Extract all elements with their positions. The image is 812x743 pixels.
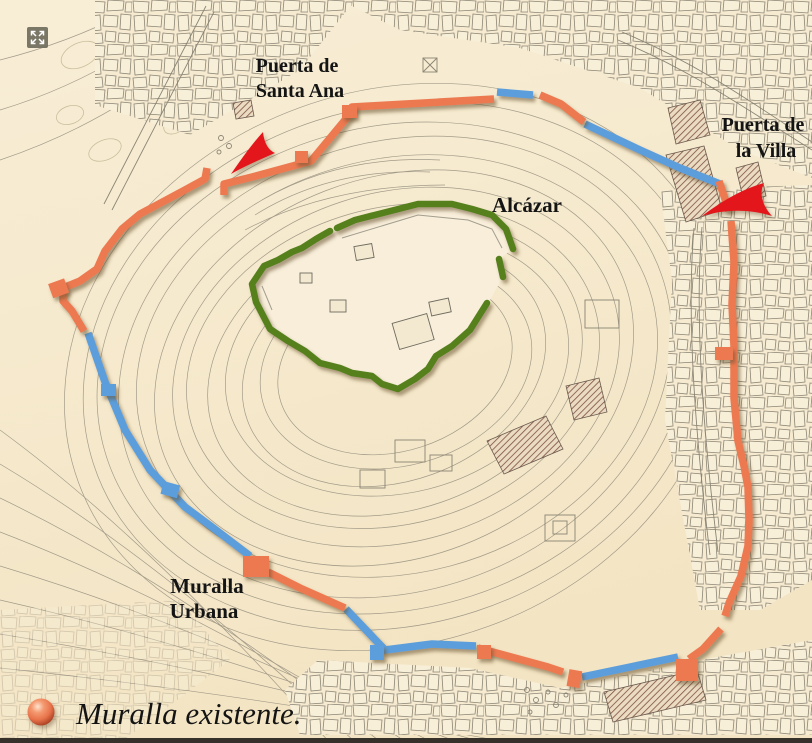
label-puerta-santa-ana-line1: Puerta de [256,55,339,77]
legend-existing-wall-marker [28,699,55,726]
label-muralla-urbana-line2: Urbana [170,599,239,623]
historical-map: Puerta de Santa Ana Puerta de la Villa A… [0,0,812,743]
label-puerta-villa-line2: la Villa [736,140,797,162]
bottom-edge-strip [0,738,812,743]
label-alcazar: Alcázar [492,193,562,217]
legend-label: Muralla existente. [75,696,302,731]
label-muralla-urbana-line1: Muralla [170,574,244,598]
label-puerta-santa-ana-line2: Santa Ana [256,80,344,102]
fullscreen-button[interactable] [27,27,48,48]
label-puerta-villa-line1: Puerta de [722,114,805,136]
